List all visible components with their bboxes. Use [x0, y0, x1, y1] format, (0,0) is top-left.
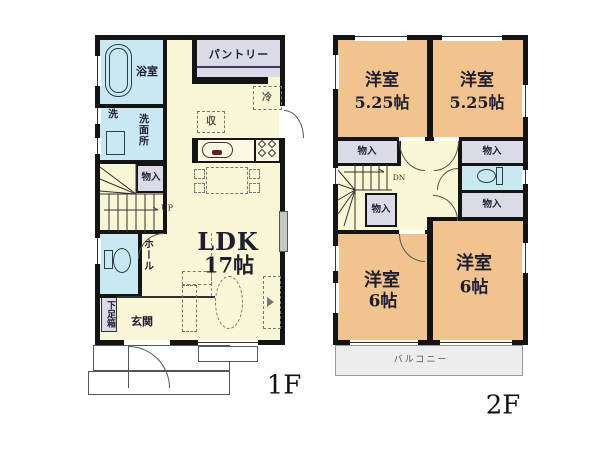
fridge-label: 冷 [262, 93, 272, 104]
kitchen-counter-cap [192, 138, 198, 163]
dining-table-icon [206, 167, 248, 194]
chair-icon [249, 183, 260, 193]
toilet-tank-icon [104, 250, 113, 269]
toilet-tank-icon [496, 167, 503, 185]
window [198, 340, 258, 345]
stove-divider [254, 139, 256, 162]
wall [338, 137, 523, 141]
ldk-size-label: 17帖 [204, 253, 254, 276]
balcony-door [350, 340, 418, 345]
room-ne-label: 洋室 [460, 72, 494, 91]
wall [458, 141, 462, 221]
washroom-label: 洗面所 [137, 114, 148, 147]
living-table-icon [215, 276, 243, 329]
window [94, 238, 101, 264]
tv-icon [267, 297, 274, 307]
chair-icon [249, 169, 260, 179]
wall [462, 190, 523, 193]
f1-garden-step [198, 346, 258, 362]
entrance-label: 玄関 [131, 316, 153, 328]
stairs-up-label: UP [161, 205, 173, 214]
door-arc [284, 110, 304, 138]
hall-label: ホール [142, 239, 153, 272]
wall [427, 40, 433, 141]
window [332, 246, 339, 271]
shoe-cabinet-label: 下足箱 [104, 301, 114, 328]
bathtub-icon [105, 44, 132, 97]
wall [523, 35, 528, 345]
room-ne-size: 5.25帖 [450, 94, 505, 112]
room-sw-size: 6帖 [369, 293, 398, 312]
washer-label: 洗 [108, 110, 118, 121]
closet-label: 物入 [141, 173, 160, 183]
window [522, 243, 529, 273]
closet-east-label: 物入 [482, 200, 501, 210]
f1-entrance-step-line [117, 296, 215, 298]
closet-center-label: 物入 [371, 205, 390, 215]
chair-icon [194, 169, 205, 179]
window [522, 170, 529, 184]
wall [192, 77, 268, 84]
window [94, 56, 101, 86]
closet-nw-label: 物入 [357, 147, 376, 157]
washer-icon [106, 131, 125, 155]
floor-2f-caption: 2F [486, 392, 521, 421]
window [94, 138, 101, 154]
chair-icon [194, 183, 205, 193]
wall [427, 217, 433, 340]
sofa-icon [182, 285, 197, 332]
closet-ne-label: 物入 [482, 147, 501, 157]
floor-1f-caption: 1F [267, 372, 302, 401]
room-nw-label: 洋室 [365, 72, 399, 91]
toilet-bowl-icon [113, 248, 131, 273]
bathroom-label: 浴室 [136, 66, 158, 78]
balcony-label: バルコニー [394, 356, 449, 366]
f1-pantry-shelf-line [197, 66, 280, 68]
faucet-icon [212, 150, 222, 155]
window [355, 34, 407, 41]
floor-plan-canvas: パントリー 浴室 洗 洗面所 物入 UP ホール 下足箱 玄関 LDK 17帖 … [0, 0, 600, 449]
ldk-label: LDK [197, 229, 259, 255]
stairs-down-icon [338, 164, 392, 232]
window [442, 34, 502, 41]
room-se-size: 6帖 [460, 279, 489, 298]
stairs-down-label: DN [393, 174, 406, 182]
room-sw-label: 洋室 [364, 271, 400, 291]
window [332, 283, 339, 313]
pantry-label: パントリー [209, 49, 270, 61]
window [332, 55, 339, 89]
wall [100, 104, 163, 108]
entrance-door-opening [124, 340, 170, 345]
window [522, 85, 529, 117]
kitchen-storage-label: 収 [206, 117, 216, 128]
room-nw-size: 5.25帖 [355, 94, 410, 112]
room-se-label: 洋室 [456, 254, 492, 274]
toilet-bowl-icon [477, 169, 496, 183]
window [94, 108, 101, 124]
balcony-door [440, 340, 512, 345]
wall [462, 163, 523, 166]
window [279, 211, 288, 252]
wall [95, 35, 285, 40]
